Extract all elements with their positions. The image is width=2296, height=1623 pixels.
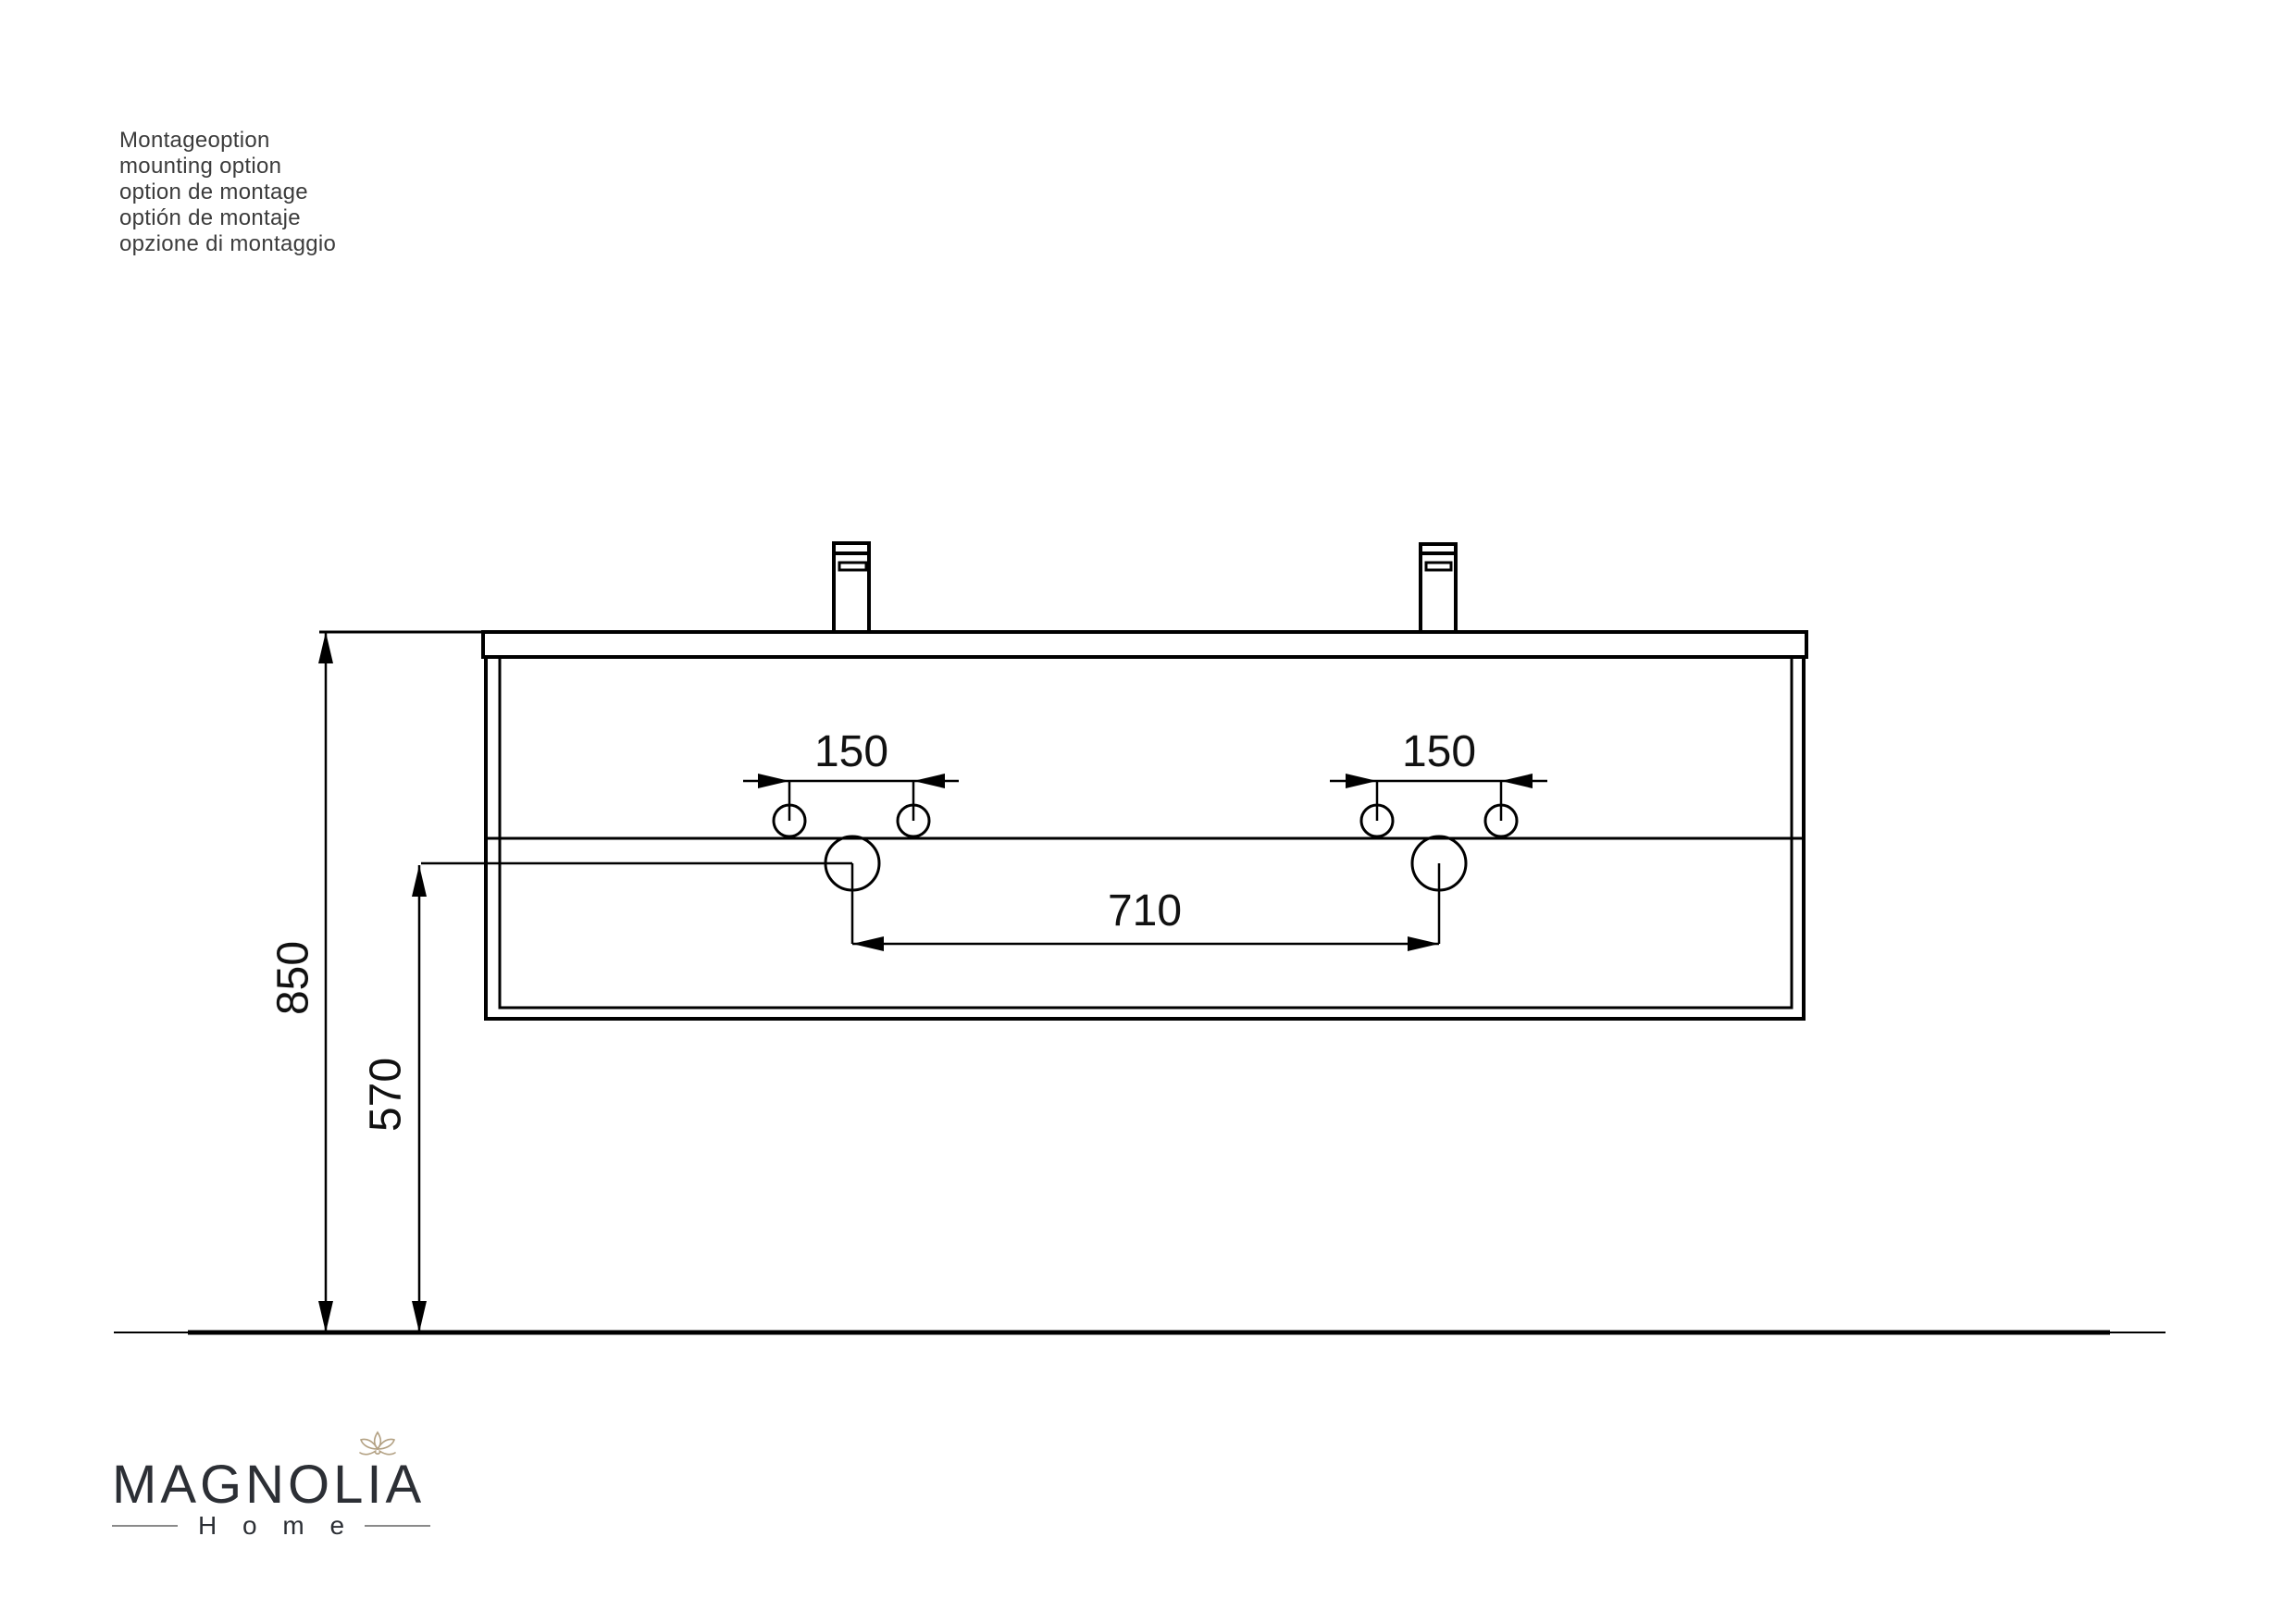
dim-value-570: 570	[362, 1058, 411, 1132]
right-rule	[365, 1525, 430, 1527]
dim-value-710: 710	[1108, 886, 1182, 935]
brand-name: MAGNOLIA	[112, 1454, 425, 1516]
brand-subtitle: H o m e	[178, 1511, 365, 1541]
arrowhead-icon	[412, 1301, 427, 1332]
dimension-570: 570	[362, 865, 428, 1332]
dim-value-150-left: 150	[814, 727, 888, 776]
arrowhead-icon	[412, 865, 427, 897]
dim-value-850: 850	[269, 941, 318, 1015]
arrowhead-icon	[318, 632, 333, 663]
dimension-850: 850	[269, 632, 484, 1332]
brand-subtitle-row: H o m e	[112, 1511, 430, 1541]
vanity-mounting-drawing: 150 150	[0, 0, 2296, 1623]
left-rule	[112, 1525, 178, 1527]
dim-value-150-right: 150	[1402, 727, 1476, 776]
countertop	[483, 632, 1806, 657]
right-faucet	[1421, 544, 1456, 632]
left-faucet	[834, 543, 869, 632]
arrowhead-icon	[318, 1301, 333, 1332]
vanity-cabinet	[483, 632, 1806, 1019]
page: Montageoption mounting option option de …	[0, 0, 2296, 1623]
